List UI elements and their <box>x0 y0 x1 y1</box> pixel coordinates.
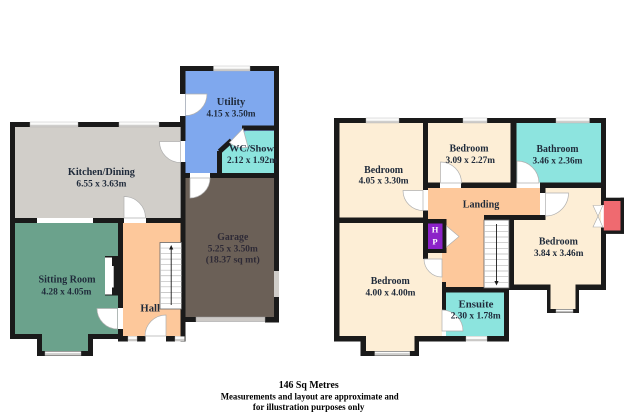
svg-text:Bedroom: Bedroom <box>450 144 489 155</box>
svg-text:for illustration purposes only: for illustration purposes only <box>253 403 365 413</box>
svg-text:Bathroom: Bathroom <box>537 144 579 155</box>
svg-text:Bedroom: Bedroom <box>539 236 578 247</box>
svg-text:2.12 x 1.92m: 2.12 x 1.92m <box>227 155 278 165</box>
svg-text:(18.37 sq mt): (18.37 sq mt) <box>206 255 260 266</box>
svg-text:Hall: Hall <box>140 304 160 315</box>
svg-text:Kitchen/Dining: Kitchen/Dining <box>68 167 136 178</box>
svg-text:H: H <box>432 225 439 235</box>
svg-text:Bedroom: Bedroom <box>371 276 410 287</box>
svg-text:3.46 x 2.36m: 3.46 x 2.36m <box>533 157 583 167</box>
svg-text:Utility: Utility <box>217 97 246 108</box>
svg-text:Landing: Landing <box>463 200 500 211</box>
svg-text:4.05 x 3.30m: 4.05 x 3.30m <box>359 177 409 187</box>
svg-text:3.09 x 2.27m: 3.09 x 2.27m <box>446 156 496 166</box>
svg-text:P: P <box>432 237 437 247</box>
svg-text:4.15 x 3.50m: 4.15 x 3.50m <box>207 110 256 120</box>
svg-text:5.25 x 3.50m: 5.25 x 3.50m <box>208 245 258 255</box>
svg-text:6.55 x 3.63m: 6.55 x 3.63m <box>76 180 126 190</box>
svg-text:Garage: Garage <box>217 232 248 243</box>
svg-text:2.30 x 1.78m: 2.30 x 1.78m <box>451 312 501 322</box>
svg-text:4.28 x 4.05m: 4.28 x 4.05m <box>41 287 91 297</box>
svg-text:146 Sq Metres: 146 Sq Metres <box>279 379 340 391</box>
svg-text:Ensuite: Ensuite <box>459 299 494 310</box>
svg-text:Bedroom: Bedroom <box>364 165 403 176</box>
svg-text:Measurements and layout are ap: Measurements and layout are approximate … <box>221 393 400 403</box>
svg-text:WC/Show: WC/Show <box>229 145 274 155</box>
svg-text:4.00 x 4.00m: 4.00 x 4.00m <box>366 289 416 299</box>
svg-text:3.84 x 3.46m: 3.84 x 3.46m <box>534 249 584 259</box>
svg-text:Sitting Room: Sitting Room <box>39 274 96 285</box>
